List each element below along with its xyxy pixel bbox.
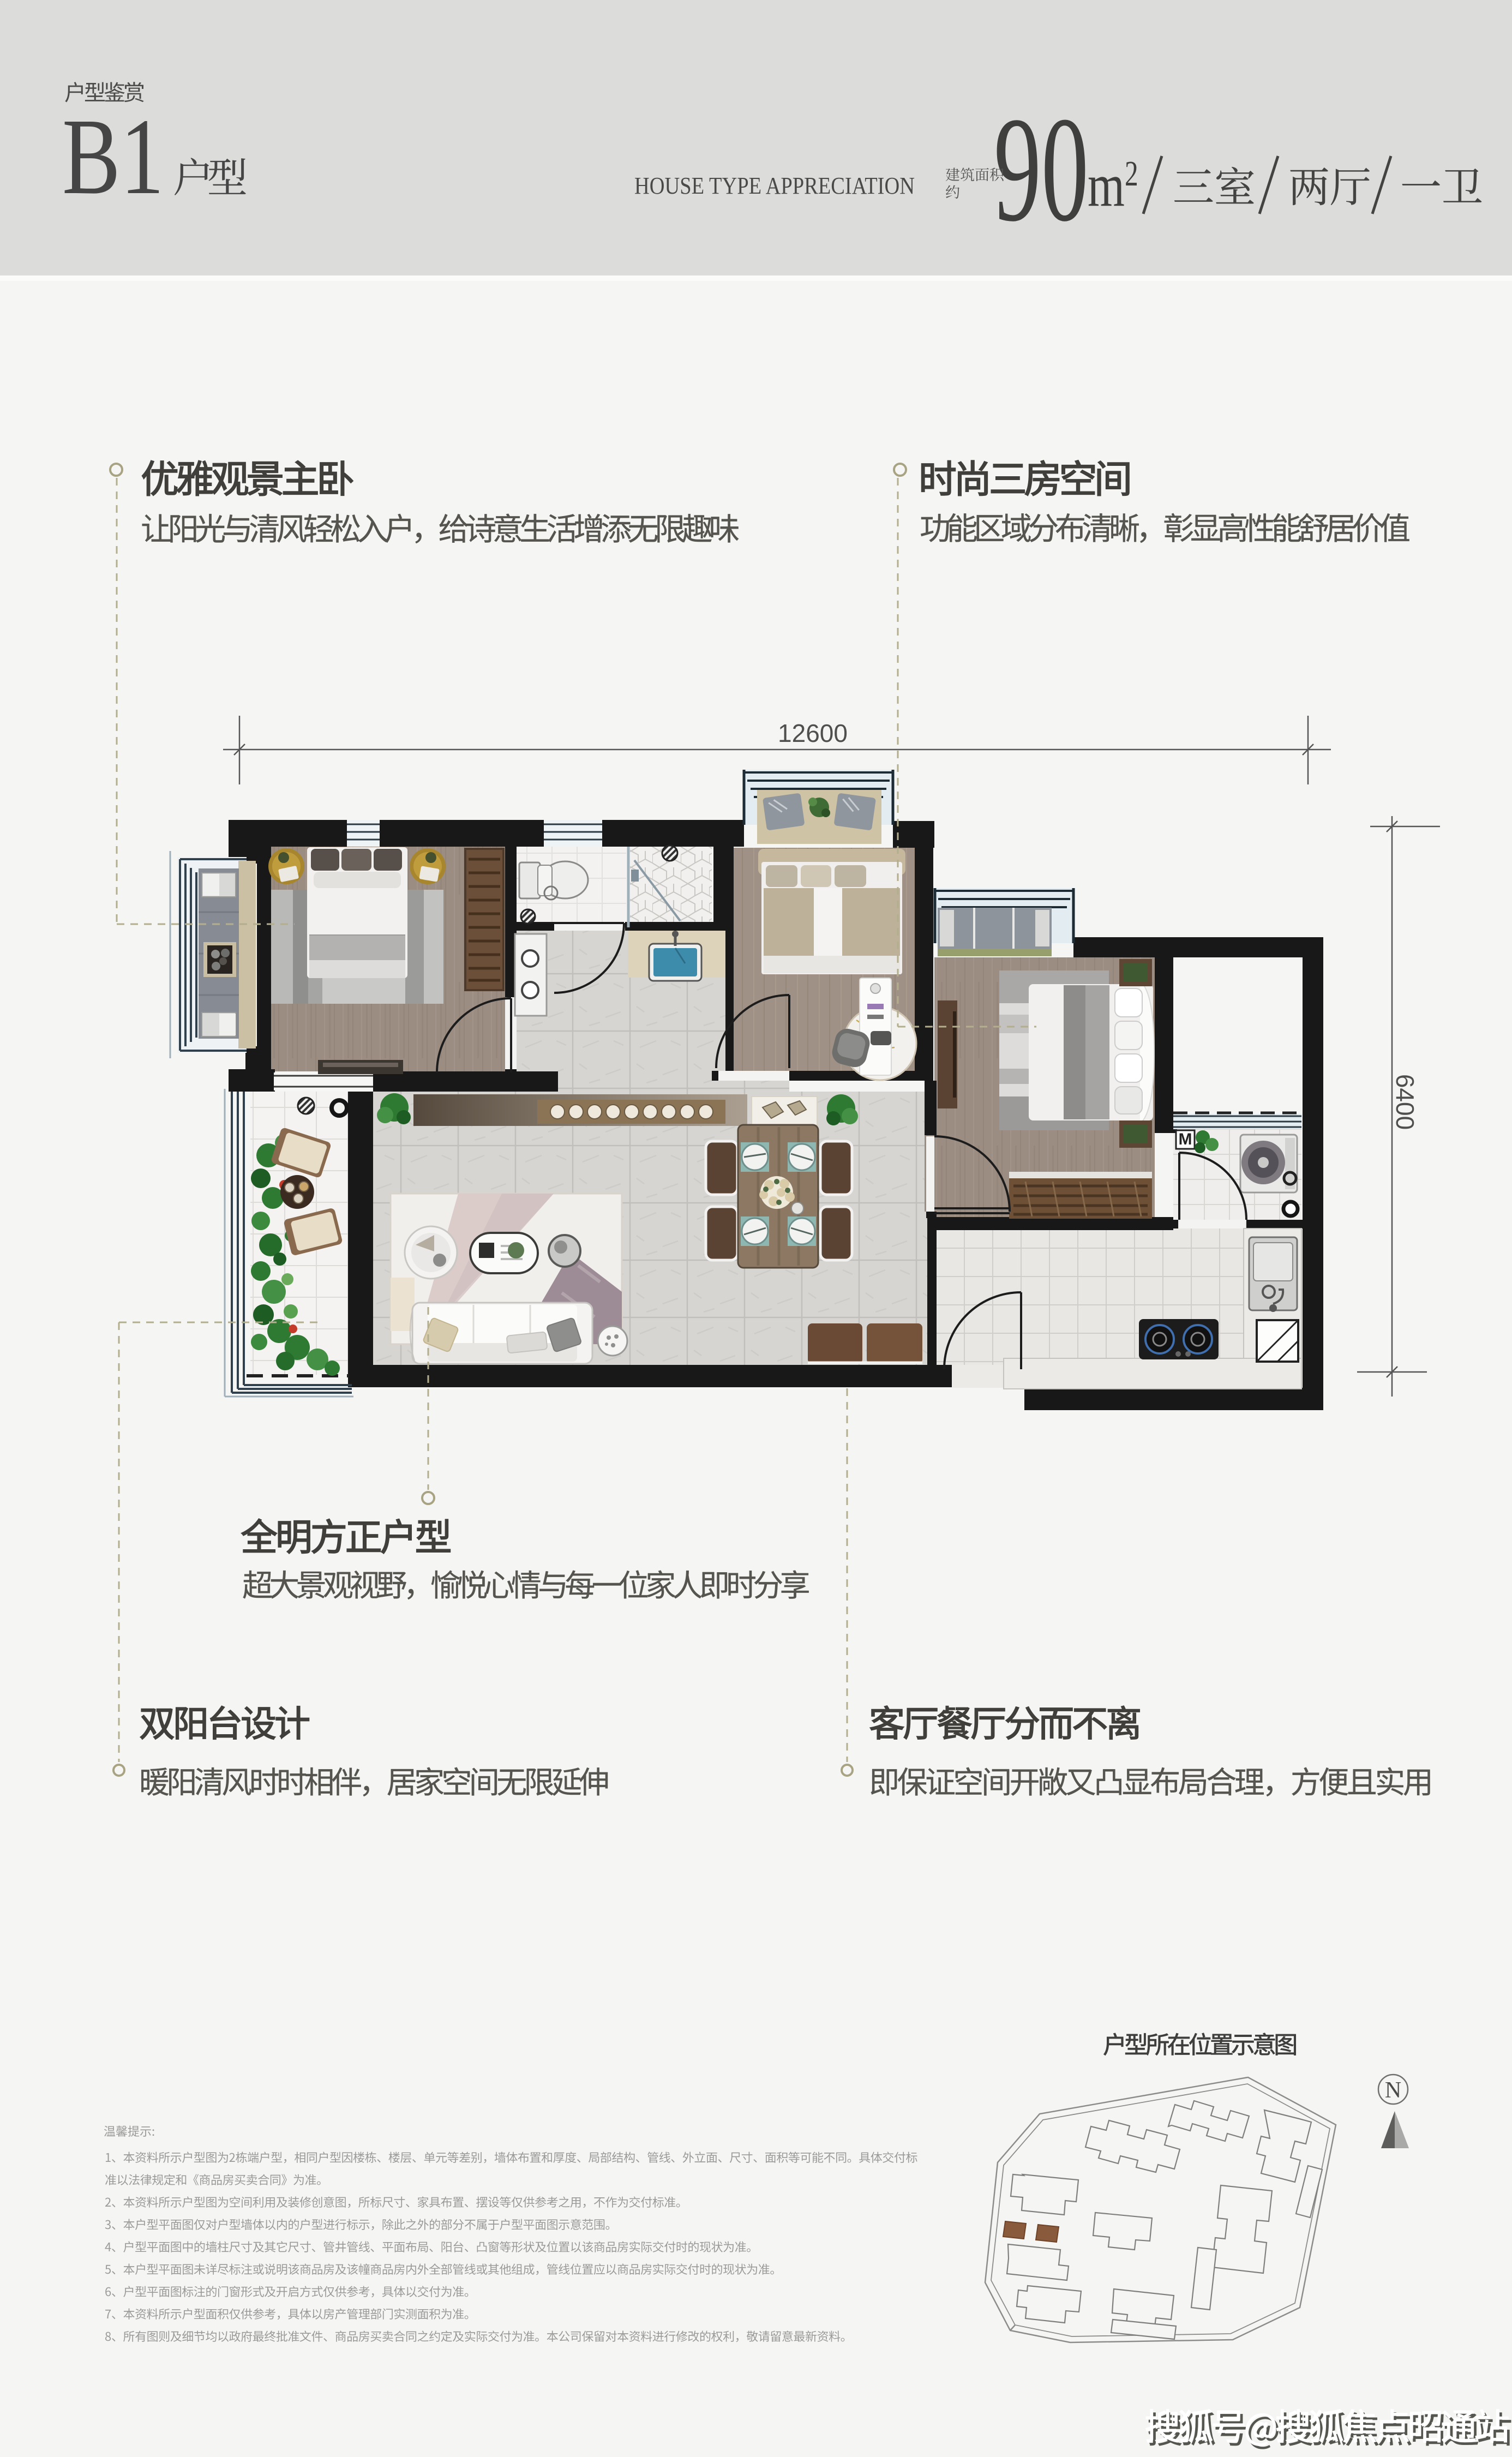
svg-text:6400: 6400 bbox=[1391, 1074, 1419, 1130]
svg-text:HOUSE TYPE APPRECIATION: HOUSE TYPE APPRECIATION bbox=[634, 172, 915, 199]
svg-text:M: M bbox=[1179, 1130, 1192, 1148]
svg-text:B1: B1 bbox=[62, 97, 164, 217]
svg-text:2: 2 bbox=[1125, 153, 1138, 194]
svg-text:90: 90 bbox=[994, 86, 1089, 253]
svg-text:N: N bbox=[1385, 2078, 1401, 2103]
svg-text:m: m bbox=[1088, 152, 1125, 219]
svg-text:12600: 12600 bbox=[778, 719, 848, 747]
